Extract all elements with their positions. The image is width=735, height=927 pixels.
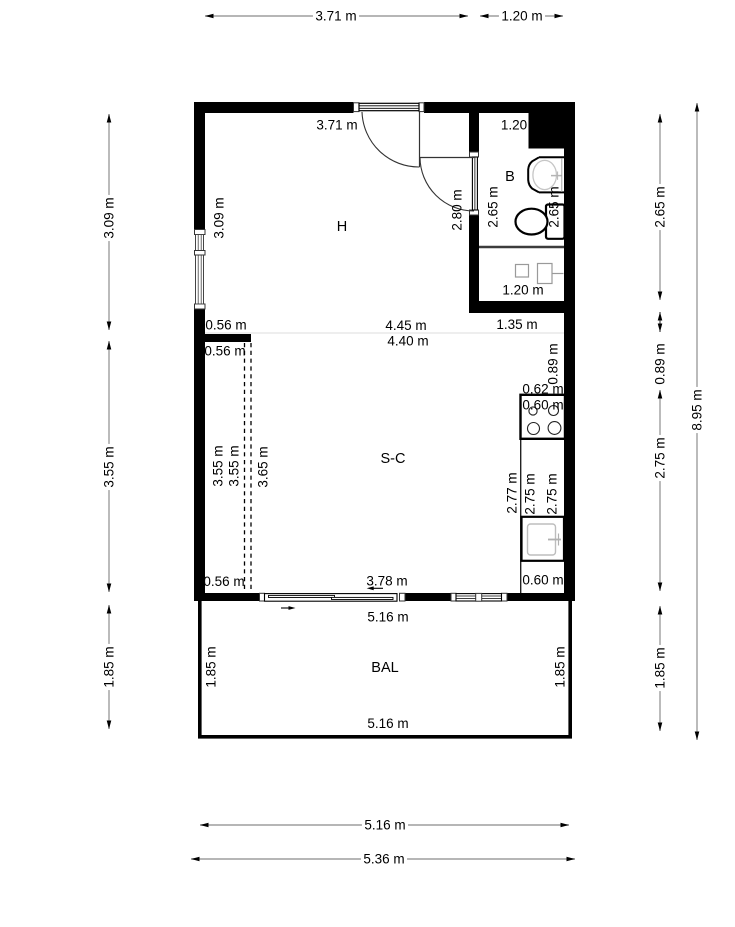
svg-text:0.56 m: 0.56 m [203,574,244,589]
svg-text:3.55 m: 3.55 m [211,445,226,486]
svg-text:3.09 m: 3.09 m [102,197,117,238]
svg-text:3.55 m: 3.55 m [102,446,117,487]
svg-text:8.95 m: 8.95 m [690,389,705,430]
svg-text:2.80 m: 2.80 m [450,189,465,230]
svg-text:2.75 m: 2.75 m [545,473,560,514]
svg-text:3.09 m: 3.09 m [212,197,227,238]
svg-text:BAL: BAL [371,660,398,676]
svg-text:1.85 m: 1.85 m [102,646,117,687]
svg-text:0.56 m: 0.56 m [205,318,246,333]
svg-text:3.71 m: 3.71 m [315,9,356,24]
svg-text:2.65 m: 2.65 m [486,186,501,227]
svg-text:1.85 m: 1.85 m [653,647,668,688]
svg-text:3.71 m: 3.71 m [316,118,357,133]
svg-text:1.20: 1.20 [501,118,527,133]
svg-text:5.36 m: 5.36 m [363,852,404,867]
svg-text:0.89 m: 0.89 m [546,343,561,384]
svg-text:1.85 m: 1.85 m [553,646,568,687]
svg-text:5.16 m: 5.16 m [367,716,408,731]
svg-text:0.60 m: 0.60 m [522,398,563,413]
svg-text:3.78 m: 3.78 m [366,574,407,589]
svg-text:4.40 m: 4.40 m [387,334,428,349]
svg-text:1.20 m: 1.20 m [501,9,542,24]
svg-text:2.75 m: 2.75 m [653,437,668,478]
svg-text:0.60 m: 0.60 m [522,573,563,588]
svg-text:2.75 m: 2.75 m [523,473,538,514]
svg-text:3.65 m: 3.65 m [256,446,271,487]
svg-text:2.65 m: 2.65 m [653,186,668,227]
svg-text:2.65 m: 2.65 m [547,186,562,227]
svg-text:S-C: S-C [381,451,406,467]
svg-text:1.85 m: 1.85 m [204,646,219,687]
svg-text:5.16 m: 5.16 m [367,610,408,625]
svg-text:2.77 m: 2.77 m [505,472,520,513]
svg-text:4.45 m: 4.45 m [385,318,426,333]
svg-text:0.56 m: 0.56 m [204,344,245,359]
svg-text:1.35 m: 1.35 m [496,317,537,332]
svg-text:3.55 m: 3.55 m [227,445,242,486]
svg-text:B: B [505,169,515,185]
svg-text:5.16 m: 5.16 m [364,818,405,833]
svg-text:H: H [337,219,347,235]
svg-text:0.89 m: 0.89 m [653,343,668,384]
svg-text:1.20 m: 1.20 m [502,283,543,298]
